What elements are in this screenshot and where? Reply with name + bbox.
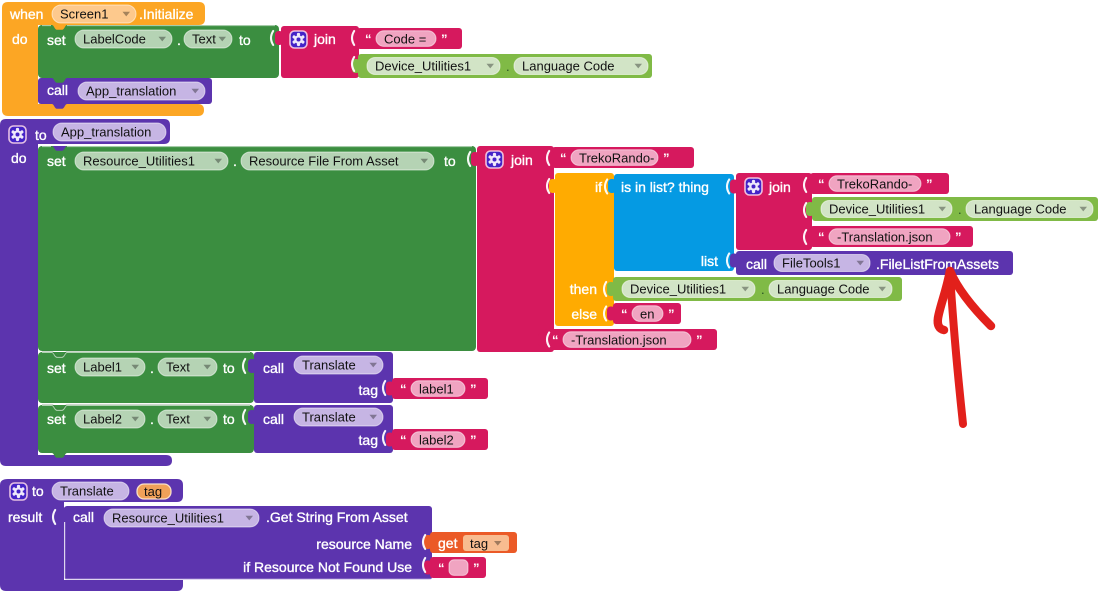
svg-text:label2: label2 — [419, 432, 454, 447]
svg-text:“: “ — [552, 333, 559, 348]
svg-text:list: list — [701, 253, 718, 269]
svg-text:Device_Utilities1: Device_Utilities1 — [375, 59, 471, 74]
svg-text:.: . — [506, 59, 510, 74]
svg-text:”: ” — [668, 307, 675, 322]
svg-text:.Get String From Asset: .Get String From Asset — [266, 509, 408, 525]
svg-text:Resource_Utilities1: Resource_Utilities1 — [112, 511, 224, 526]
svg-text:call: call — [47, 82, 68, 98]
svg-text:if: if — [595, 179, 602, 195]
svg-text:“: “ — [438, 561, 445, 576]
svg-text:resource Name: resource Name — [316, 536, 412, 552]
svg-text:label1: label1 — [419, 381, 454, 396]
svg-text:Language Code: Language Code — [974, 202, 1067, 217]
svg-text:Translate: Translate — [302, 358, 356, 373]
svg-text:to: to — [223, 411, 235, 427]
svg-text:do: do — [11, 150, 27, 166]
svg-text:.: . — [958, 202, 962, 217]
svg-text:.: . — [150, 411, 154, 427]
svg-text:tag: tag — [359, 432, 378, 448]
svg-text:set: set — [47, 32, 66, 48]
svg-text:else: else — [571, 306, 597, 322]
svg-text:-Translation.json: -Translation.json — [837, 229, 933, 244]
svg-text:Screen1: Screen1 — [60, 7, 108, 22]
svg-text:.: . — [177, 32, 181, 48]
svg-text:get: get — [438, 535, 458, 551]
svg-text:join: join — [313, 31, 336, 47]
svg-text:App_translation: App_translation — [86, 84, 176, 99]
svg-text:“: “ — [818, 230, 825, 245]
svg-text:en: en — [640, 306, 654, 321]
svg-text:.FileListFromAssets: .FileListFromAssets — [876, 256, 999, 272]
svg-text:Resource_Utilities1: Resource_Utilities1 — [83, 154, 195, 169]
svg-text:“: “ — [365, 32, 372, 47]
svg-text:to: to — [32, 483, 44, 499]
svg-text:”: ” — [696, 333, 703, 348]
svg-text:result: result — [8, 509, 42, 525]
svg-text:“: “ — [400, 433, 407, 448]
svg-text:Translate: Translate — [302, 410, 356, 425]
svg-text:”: ” — [926, 177, 933, 192]
svg-text:”: ” — [441, 32, 448, 47]
svg-text:set: set — [47, 153, 66, 169]
svg-text:do: do — [12, 31, 28, 47]
svg-text:Code =: Code = — [384, 31, 426, 46]
svg-text:-Translation.json: -Translation.json — [571, 332, 667, 347]
svg-text:Device_Utilities1: Device_Utilities1 — [829, 202, 925, 217]
svg-text:Resource File From Asset: Resource File From Asset — [249, 154, 399, 169]
svg-text:Device_Utilities1: Device_Utilities1 — [630, 282, 726, 297]
svg-text:when: when — [9, 6, 43, 22]
svg-text:”: ” — [663, 151, 670, 166]
svg-text:”: ” — [955, 230, 962, 245]
svg-text:is in list? thing: is in list? thing — [621, 179, 709, 195]
svg-text:to: to — [239, 32, 251, 48]
svg-text:set: set — [47, 411, 66, 427]
svg-text:FileTools1: FileTools1 — [782, 256, 841, 271]
svg-text:“: “ — [621, 307, 628, 322]
svg-text:Text: Text — [166, 412, 190, 427]
svg-text:”: ” — [470, 382, 477, 397]
svg-text:if Resource Not Found Use: if Resource Not Found Use — [243, 559, 412, 575]
svg-text:join: join — [768, 179, 791, 195]
svg-text:LabelCode: LabelCode — [83, 32, 146, 47]
svg-text:“: “ — [560, 151, 567, 166]
svg-text:tag: tag — [144, 484, 162, 499]
svg-text:.Initialize: .Initialize — [139, 6, 194, 22]
svg-text:tag: tag — [359, 382, 378, 398]
svg-text:.: . — [761, 282, 765, 297]
svg-text:App_translation: App_translation — [61, 125, 151, 140]
svg-text:call: call — [263, 411, 284, 427]
svg-text:join: join — [510, 152, 533, 168]
svg-text:TrekoRando-: TrekoRando- — [837, 176, 912, 191]
svg-text:“: “ — [400, 382, 407, 397]
svg-text:set: set — [47, 360, 66, 376]
svg-text:TrekoRando-: TrekoRando- — [579, 150, 654, 165]
svg-text:Text: Text — [192, 32, 216, 47]
svg-text:call: call — [73, 509, 94, 525]
svg-text:then: then — [570, 281, 597, 297]
svg-text:call: call — [263, 360, 284, 376]
svg-text:.: . — [150, 360, 154, 376]
svg-text:”: ” — [470, 433, 477, 448]
svg-text:call: call — [746, 256, 767, 272]
svg-text:Label1: Label1 — [83, 360, 122, 375]
svg-text:to: to — [444, 153, 456, 169]
svg-text:to: to — [35, 127, 47, 143]
svg-text:Text: Text — [166, 360, 190, 375]
svg-text:”: ” — [473, 561, 480, 576]
svg-text:Language Code: Language Code — [777, 282, 870, 297]
svg-text:.: . — [233, 153, 237, 169]
svg-text:Translate: Translate — [60, 484, 114, 499]
svg-text:tag: tag — [470, 536, 488, 551]
svg-text:“: “ — [818, 177, 825, 192]
svg-text:Language Code: Language Code — [522, 59, 615, 74]
svg-text:to: to — [223, 360, 235, 376]
svg-text:Label2: Label2 — [83, 412, 122, 427]
